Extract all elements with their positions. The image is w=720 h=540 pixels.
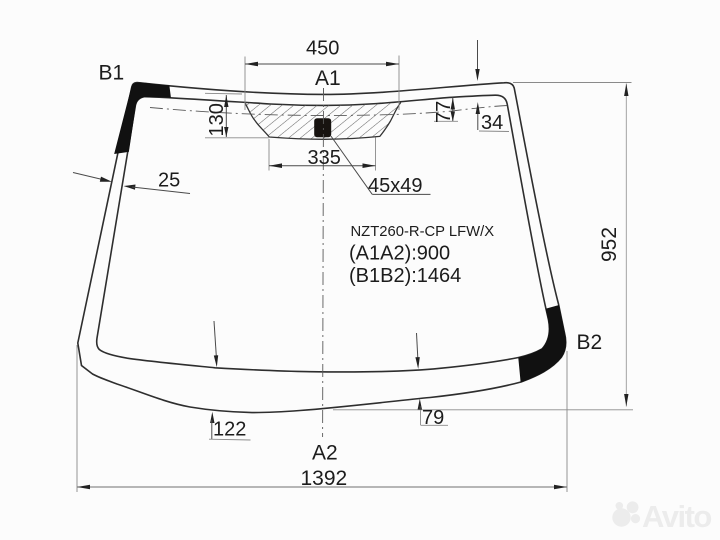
- svg-text:450: 450: [306, 38, 339, 60]
- svg-text:1392: 1392: [301, 467, 348, 490]
- svg-text:A2: A2: [312, 442, 338, 465]
- svg-text:77: 77: [433, 101, 455, 123]
- svg-text:79: 79: [422, 407, 444, 429]
- svg-text:B1: B1: [99, 62, 125, 85]
- svg-text:Avito: Avito: [642, 499, 711, 534]
- svg-text:34: 34: [481, 112, 503, 134]
- svg-text:25: 25: [158, 170, 180, 192]
- svg-text:122: 122: [213, 419, 246, 441]
- svg-text:(B1B2):1464: (B1B2):1464: [349, 265, 461, 287]
- svg-text:952: 952: [598, 227, 621, 262]
- svg-text:335: 335: [308, 147, 341, 169]
- svg-text:45x49: 45x49: [368, 175, 423, 197]
- svg-text:NZT260-R-CP LFW/X: NZT260-R-CP LFW/X: [351, 224, 495, 240]
- svg-text:A1: A1: [315, 67, 341, 90]
- svg-text:B2: B2: [577, 331, 603, 354]
- svg-text:(A1A2):900: (A1A2):900: [349, 243, 450, 265]
- svg-text:130: 130: [206, 103, 228, 136]
